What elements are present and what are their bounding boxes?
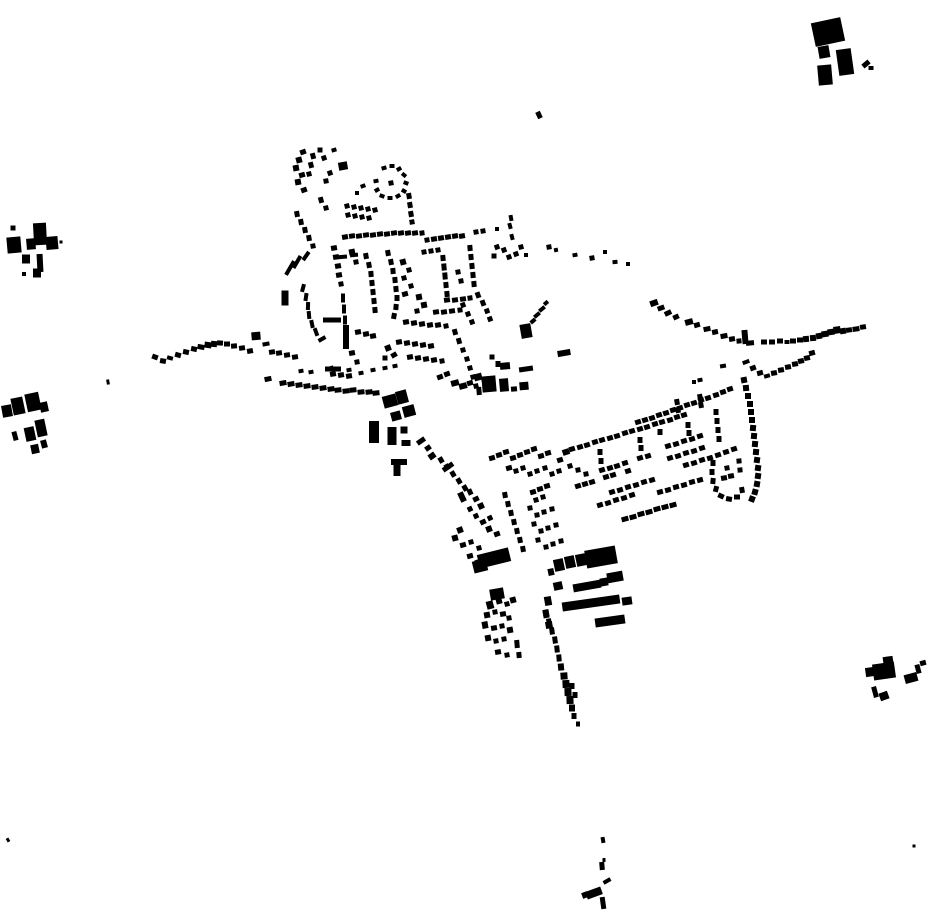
building-footprint <box>833 326 841 334</box>
building-footprint <box>377 231 384 237</box>
building-footprint <box>346 373 353 379</box>
building-footprint <box>414 308 420 314</box>
building-footprint <box>485 635 492 642</box>
building-footprint <box>343 316 347 325</box>
building-footprint <box>458 278 464 284</box>
building-footprint <box>217 340 223 345</box>
building-footprint <box>22 255 30 264</box>
building-footprint <box>499 378 509 392</box>
building-footprint <box>307 311 312 319</box>
building-footprint <box>840 328 847 335</box>
building-footprint <box>404 340 411 346</box>
building-footprint <box>420 342 427 348</box>
building-footprint <box>500 362 511 370</box>
building-footprint <box>492 254 497 259</box>
building-footprint <box>445 234 452 240</box>
building-footprint <box>747 401 753 407</box>
building-footprint <box>470 272 476 278</box>
building-footprint <box>334 387 341 393</box>
building-footprint <box>558 538 564 544</box>
building-footprint <box>455 269 461 275</box>
building-footprint <box>350 253 358 258</box>
building-footprint <box>331 245 338 251</box>
building-footprint <box>282 291 289 306</box>
building-footprint <box>392 364 398 369</box>
building-footprint <box>612 260 617 264</box>
building-footprint <box>546 244 552 250</box>
building-footprint <box>545 525 551 531</box>
building-footprint <box>736 458 741 463</box>
building-footprint <box>575 467 581 473</box>
building-footprint <box>355 191 359 195</box>
building-footprint <box>467 245 473 251</box>
building-footprint <box>231 343 237 349</box>
building-footprint <box>368 271 374 277</box>
building-footprint <box>392 277 398 283</box>
building-footprint <box>572 253 578 258</box>
building-footprint <box>336 272 343 278</box>
building-footprint <box>621 596 632 605</box>
building-footprint <box>372 390 379 396</box>
building-footprint <box>490 355 495 360</box>
building-footprint <box>538 528 544 534</box>
building-footprint <box>658 429 663 435</box>
building-footprint <box>292 354 299 360</box>
building-footprint <box>777 339 783 344</box>
building-footprint <box>626 262 630 266</box>
building-footprint <box>810 335 817 342</box>
building-footprint <box>444 291 450 297</box>
building-footprint <box>338 161 348 170</box>
building-footprint <box>338 281 344 287</box>
building-footprint <box>500 611 507 617</box>
building-footprint <box>698 402 704 409</box>
building-footprint <box>327 386 335 392</box>
building-footprint <box>440 255 446 261</box>
building-footprint <box>211 341 218 348</box>
building-footprint <box>388 427 397 445</box>
building-footprint <box>564 688 571 696</box>
building-footprint <box>745 393 751 399</box>
building-footprint <box>438 235 445 241</box>
building-footprint <box>769 340 775 345</box>
building-footprint <box>370 368 376 373</box>
building-footprint <box>467 295 473 301</box>
building-footprint <box>480 228 486 234</box>
building-footprint <box>391 230 398 236</box>
building-footprint <box>558 663 565 670</box>
building-footprint <box>511 519 517 526</box>
building-footprint <box>505 501 511 508</box>
building-footprint <box>370 232 377 238</box>
building-footprint <box>484 612 491 619</box>
building-footprint <box>542 609 549 617</box>
building-footprint <box>372 307 378 313</box>
building-footprint <box>710 478 716 484</box>
building-footprint <box>743 385 750 392</box>
building-footprint <box>388 196 393 200</box>
building-footprint <box>541 509 547 515</box>
building-footprint <box>442 272 448 279</box>
building-footprint <box>342 305 346 314</box>
building-footprint <box>869 66 874 70</box>
building-footprint <box>846 327 853 333</box>
building-footprint <box>311 384 319 390</box>
figure-ground-map <box>0 0 930 924</box>
building-footprint <box>251 332 261 341</box>
building-footprint <box>468 254 474 260</box>
building-footprint <box>370 333 377 339</box>
building-footprint <box>549 627 555 635</box>
building-footprint <box>373 179 379 184</box>
building-footprint <box>427 322 434 328</box>
building-footprint <box>469 263 475 269</box>
building-footprint <box>755 473 762 480</box>
building-footprint <box>721 475 728 481</box>
building-footprint <box>1 404 13 418</box>
building-footprint <box>405 230 412 236</box>
building-footprint <box>736 338 741 343</box>
building-footprint <box>366 262 372 269</box>
building-footprint <box>524 253 528 257</box>
building-footprint <box>60 241 63 244</box>
building-footprint <box>349 233 356 239</box>
building-footprint <box>323 178 329 184</box>
building-footprint <box>407 354 414 360</box>
building-footprint <box>872 662 896 681</box>
building-footprint <box>603 250 607 254</box>
building-footprint <box>449 308 456 314</box>
building-footprint <box>452 297 459 303</box>
building-footprint <box>549 506 555 512</box>
building-footprint <box>499 623 505 629</box>
building-footprint <box>424 237 430 243</box>
building-footprint <box>493 638 499 644</box>
building-footprint <box>790 339 796 344</box>
building-footprint <box>298 219 304 226</box>
building-footprint <box>598 449 603 455</box>
building-footprint <box>365 389 372 395</box>
building-footprint <box>160 358 167 364</box>
building-footprint <box>344 327 348 336</box>
building-footprint <box>444 297 451 303</box>
building-footprint <box>293 165 300 172</box>
building-footprint <box>388 180 394 186</box>
building-footprint <box>514 528 520 535</box>
building-footprint <box>754 457 761 464</box>
building-footprint <box>502 492 508 499</box>
building-footprint <box>797 338 803 343</box>
building-footprint <box>398 230 405 236</box>
building-footprint <box>306 235 312 242</box>
building-footprint <box>428 343 435 349</box>
building-footprint <box>363 331 370 337</box>
map-canvas <box>0 0 930 924</box>
building-footprint <box>401 427 408 434</box>
building-footprint <box>481 621 488 629</box>
building-footprint <box>355 329 362 335</box>
building-footprint <box>554 248 559 253</box>
building-footprint <box>589 255 595 261</box>
building-footprint <box>746 340 754 346</box>
building-footprint <box>778 367 785 373</box>
building-footprint <box>298 369 304 374</box>
building-footprint <box>384 231 391 237</box>
building-footprint <box>741 377 748 384</box>
building-footprint <box>572 713 577 719</box>
building-footprint <box>514 640 520 648</box>
building-footprint <box>570 683 575 689</box>
building-footprint <box>460 296 467 302</box>
building-footprint <box>739 487 745 494</box>
building-footprint <box>459 233 466 239</box>
building-footprint <box>247 348 254 354</box>
building-footprint <box>717 436 722 442</box>
building-footprint <box>421 249 427 255</box>
building-footprint <box>295 179 302 186</box>
building-footprint <box>345 338 349 346</box>
building-footprint <box>419 230 425 236</box>
building-footprint <box>728 473 735 479</box>
building-footprint <box>552 636 558 644</box>
building-footprint <box>452 233 459 239</box>
building-footprint <box>406 193 412 200</box>
building-footprint <box>441 263 447 270</box>
building-footprint <box>517 537 523 544</box>
building-footprint <box>751 433 758 440</box>
building-footprint <box>473 229 479 235</box>
building-footprint <box>409 219 415 225</box>
building-footprint <box>318 148 323 153</box>
building-footprint <box>393 304 399 310</box>
building-footprint <box>752 441 759 448</box>
building-footprint <box>342 234 349 240</box>
building-footprint <box>204 342 212 349</box>
building-footprint <box>860 324 867 330</box>
building-footprint <box>402 440 411 446</box>
building-footprint <box>506 615 512 621</box>
building-footprint <box>476 387 482 395</box>
building-footprint <box>284 352 291 358</box>
building-footprint <box>412 230 419 236</box>
building-footprint <box>535 537 541 543</box>
building-footprint <box>6 236 21 253</box>
building-footprint <box>421 302 428 309</box>
building-footprint <box>416 294 423 301</box>
building-footprint <box>675 407 681 414</box>
building-footprint <box>750 425 757 432</box>
building-footprint <box>507 627 514 634</box>
building-footprint <box>511 386 517 392</box>
building-footprint <box>573 692 578 698</box>
building-footprint <box>883 656 894 664</box>
building-footprint <box>748 409 754 415</box>
building-footprint <box>276 350 283 356</box>
building-footprint <box>792 361 799 367</box>
building-footprint <box>603 858 606 862</box>
building-footprint <box>431 357 438 363</box>
building-footprint <box>408 211 414 218</box>
building-footprint <box>419 321 426 327</box>
building-footprint <box>45 236 58 250</box>
building-footprint <box>391 313 397 320</box>
building-footprint <box>385 250 391 257</box>
building-footprint <box>411 320 418 326</box>
building-footprint <box>716 427 721 433</box>
building-footprint <box>491 625 498 631</box>
building-footprint <box>363 253 369 260</box>
building-footprint <box>435 322 442 328</box>
building-footprint <box>852 326 860 332</box>
building-footprint <box>516 652 522 658</box>
building-footprint <box>471 281 477 287</box>
building-footprint <box>737 467 742 472</box>
building-footprint <box>554 645 560 652</box>
building-footprint <box>583 471 589 477</box>
building-footprint <box>388 259 394 266</box>
building-footprint <box>686 422 691 428</box>
building-footprint <box>913 845 916 848</box>
building-footprint <box>638 437 643 443</box>
building-footprint <box>697 394 703 401</box>
building-footprint <box>302 227 308 234</box>
building-footprint <box>369 421 379 443</box>
building-footprint <box>335 263 342 269</box>
building-footprint <box>495 227 499 231</box>
map-background <box>0 0 930 924</box>
building-footprint <box>390 164 395 168</box>
building-footprint <box>754 481 761 488</box>
building-footprint <box>439 358 445 364</box>
building-footprint <box>310 243 316 249</box>
building-footprint <box>22 272 26 276</box>
building-footprint <box>338 372 345 378</box>
building-footprint <box>433 309 440 315</box>
building-footprint <box>443 282 449 288</box>
building-footprint <box>357 389 364 395</box>
building-footprint <box>734 495 740 500</box>
building-footprint <box>553 522 559 528</box>
building-footprint <box>501 636 507 642</box>
building-footprint <box>33 223 47 246</box>
building-footprint <box>492 609 498 615</box>
building-footprint <box>761 340 767 345</box>
building-footprint <box>785 364 792 370</box>
building-footprint <box>308 370 314 375</box>
building-footprint <box>818 45 831 59</box>
building-footprint <box>443 323 449 329</box>
building-footprint <box>356 233 363 239</box>
building-footprint <box>753 449 760 456</box>
building-footprint <box>504 652 510 658</box>
building-footprint <box>349 387 356 393</box>
building-footprint <box>369 280 375 286</box>
building-footprint <box>393 286 399 292</box>
building-footprint <box>431 236 438 242</box>
building-footprint <box>599 458 604 464</box>
building-footprint <box>534 512 540 518</box>
building-footprint <box>817 64 833 85</box>
building-footprint <box>323 318 341 323</box>
building-footprint <box>520 546 526 553</box>
building-footprint <box>382 366 388 371</box>
building-footprint <box>428 248 434 254</box>
building-footprint <box>803 336 810 343</box>
building-footprint <box>342 388 349 394</box>
building-footprint <box>816 333 823 340</box>
building-footprint <box>224 342 230 347</box>
building-footprint <box>269 349 276 355</box>
building-footprint <box>729 336 736 342</box>
building-footprint <box>441 309 448 315</box>
building-footprint <box>319 385 327 391</box>
building-footprint <box>354 359 360 365</box>
building-footprint <box>358 371 364 376</box>
building-footprint <box>370 289 376 295</box>
building-footprint <box>674 399 680 406</box>
building-footprint <box>415 355 422 361</box>
building-footprint <box>353 259 359 265</box>
building-footprint <box>687 430 692 436</box>
building-footprint <box>749 417 755 423</box>
building-footprint <box>531 521 537 527</box>
building-footprint <box>412 341 419 347</box>
building-footprint <box>349 350 356 356</box>
building-footprint <box>346 368 352 373</box>
building-footprint <box>33 269 41 278</box>
building-footprint <box>785 340 790 344</box>
building-footprint <box>11 226 16 231</box>
building-footprint <box>527 505 533 511</box>
building-footprint <box>550 541 556 547</box>
building-footprint <box>383 356 388 361</box>
building-footprint <box>371 298 377 304</box>
building-footprint <box>865 667 875 677</box>
building-footprint <box>395 295 400 301</box>
building-footprint <box>306 302 310 310</box>
building-footprint <box>239 345 246 351</box>
building-footprint <box>390 268 396 274</box>
building-footprint <box>562 680 569 688</box>
building-footprint <box>495 649 502 655</box>
building-footprint <box>519 382 529 391</box>
building-footprint <box>295 382 303 388</box>
building-footprint <box>639 445 644 451</box>
building-footprint <box>724 465 730 471</box>
building-footprint <box>423 356 430 362</box>
building-footprint <box>481 375 496 392</box>
building-footprint <box>697 378 703 383</box>
building-footprint <box>294 211 300 218</box>
building-footprint <box>711 460 716 466</box>
building-footprint <box>496 361 501 367</box>
building-footprint <box>692 380 696 384</box>
building-footprint <box>303 383 311 389</box>
building-footprint <box>363 232 370 238</box>
building-footprint <box>710 469 715 475</box>
building-footprint <box>715 418 720 424</box>
building-footprint <box>407 202 413 209</box>
building-footprint <box>569 705 575 712</box>
building-footprint <box>394 464 401 476</box>
building-footprint <box>330 371 337 377</box>
building-footprint <box>599 862 605 870</box>
building-footprint <box>508 510 514 517</box>
building-footprint <box>714 409 719 415</box>
building-footprint <box>403 319 410 325</box>
building-footprint <box>556 654 562 661</box>
building-footprint <box>726 496 733 502</box>
